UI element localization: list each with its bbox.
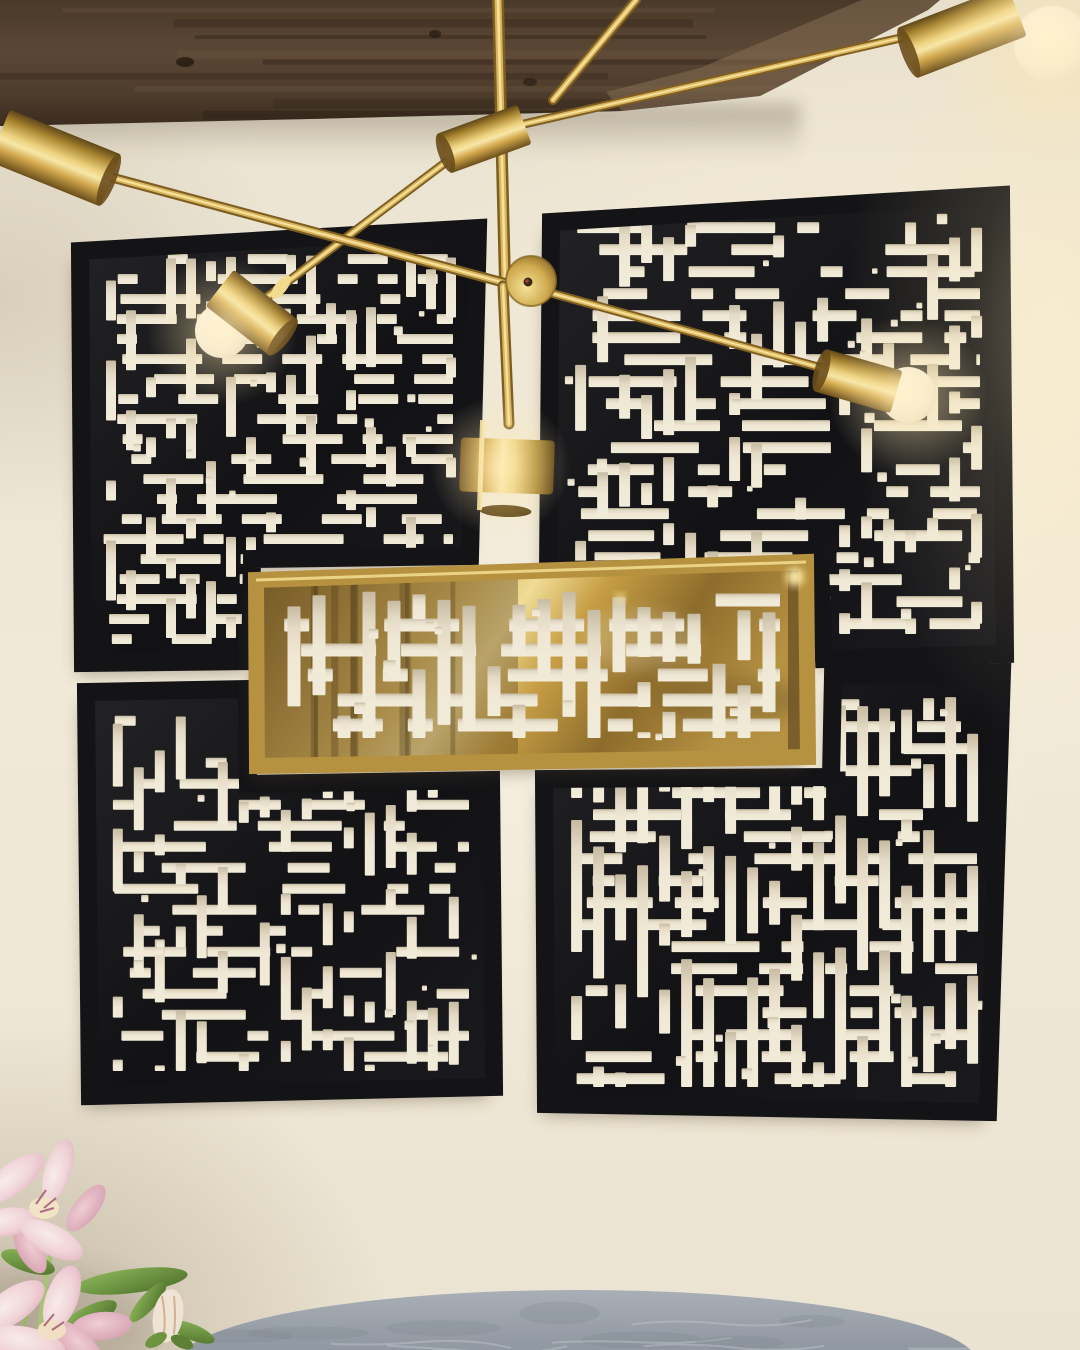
kufic-cutout: [458, 842, 469, 852]
kufic-cutout: [354, 703, 366, 715]
beam-grain-streak: [0, 73, 608, 80]
kufic-cutout: [716, 594, 780, 607]
kufic-cutout: [689, 266, 755, 277]
flower-petal: [59, 1179, 112, 1238]
kufic-cutout: [134, 960, 143, 969]
kufic-cutout: [428, 1008, 438, 1071]
kufic-cutout: [396, 947, 459, 957]
kufic-cutout: [155, 750, 165, 792]
kufic-cutout: [744, 831, 832, 842]
kufic-cutout: [581, 508, 669, 519]
kufic-cutout: [162, 863, 246, 873]
kufic-cutout: [731, 244, 775, 255]
kufic-cutout: [197, 1021, 207, 1063]
kufic-cutout: [681, 871, 692, 937]
kufic-cutout: [229, 491, 235, 497]
kufic-cutout: [891, 994, 901, 1004]
kufic-cutout: [306, 336, 316, 396]
kufic-cutout: [593, 809, 681, 820]
kufic-cutout: [659, 990, 670, 1034]
kufic-cutout: [369, 629, 379, 639]
kufic-cutout: [638, 682, 651, 707]
kufic-cutout: [187, 450, 193, 456]
kufic-cutout: [691, 288, 713, 299]
kufic-cutout: [879, 840, 890, 928]
kufic-cutout: [685, 357, 696, 423]
kufic-cutout: [109, 614, 149, 624]
kufic-cutout: [383, 660, 396, 673]
kufic-cutout: [218, 867, 228, 909]
kufic-cutout: [405, 1021, 414, 1030]
marble-mottle: [519, 1301, 599, 1324]
kufic-cutout: [437, 989, 469, 999]
kufic-cutout: [794, 919, 860, 930]
kufic-cutout: [857, 838, 868, 970]
marble-mottle: [580, 1331, 702, 1348]
kufic-cutout: [923, 698, 934, 720]
kufic-cutout: [935, 963, 977, 974]
kufic-cutout: [839, 525, 850, 547]
kufic-cutout: [146, 437, 156, 457]
kufic-cutout: [597, 459, 607, 469]
kufic-cutout: [721, 376, 809, 387]
kufic-cutout: [226, 617, 236, 638]
beam-knot: [429, 30, 441, 38]
kufic-cutout: [407, 917, 417, 959]
kufic-cutout: [923, 830, 934, 962]
kufic-cutout: [204, 534, 224, 544]
kufic-cutout: [725, 856, 736, 944]
kufic-cutout: [681, 959, 692, 1087]
beam-knot: [176, 57, 194, 67]
kufic-cutout: [773, 235, 784, 257]
kufic-cutout: [619, 221, 630, 287]
kufic-cutout: [426, 426, 432, 432]
kufic-cutout: [449, 1002, 459, 1065]
kufic-cutout: [763, 260, 769, 266]
kufic-cutout: [683, 719, 780, 732]
kufic-cutout: [438, 600, 451, 725]
kufic-cutout: [672, 941, 760, 952]
kufic-cutout: [406, 437, 416, 457]
kufic-cutout: [113, 997, 123, 1018]
kufic-cutout: [206, 477, 213, 484]
kufic-cutout: [113, 829, 123, 892]
kufic-cutout: [615, 786, 626, 852]
kufic-cutout: [413, 669, 426, 738]
kufic-cutout: [366, 427, 376, 467]
kufic-cutout: [663, 457, 674, 501]
kufic-cutout: [282, 884, 345, 894]
kufic-cutout: [166, 418, 176, 438]
kufic-cutout: [344, 1037, 354, 1071]
kufic-cutout: [901, 820, 912, 842]
kufic-cutout: [346, 803, 355, 812]
kufic-cutout: [346, 390, 356, 410]
kufic-cutout: [513, 705, 526, 738]
kufic-cutout: [426, 269, 436, 309]
kufic-cutout: [386, 805, 396, 868]
kufic-cutout: [146, 517, 156, 557]
kufic-cutout: [288, 606, 301, 706]
kufic-cutout: [764, 464, 786, 475]
kufic-cutout: [735, 288, 779, 299]
kufic-cutout: [288, 863, 330, 873]
kufic-cutout: [769, 969, 780, 1057]
kufic-cutout: [846, 765, 912, 776]
kufic-cutout: [967, 976, 978, 1064]
kufic-cutout: [337, 414, 357, 424]
kufic-cutout: [344, 827, 354, 848]
kufic-cutout: [365, 1065, 375, 1071]
kufic-cutout: [640, 919, 706, 930]
kufic-cutout: [260, 797, 270, 818]
kufic-cutout: [931, 1034, 941, 1044]
kufic-cutout: [407, 833, 417, 875]
kufic-cutout: [248, 254, 288, 264]
kufic-cutout: [186, 519, 196, 539]
gold-wood-streak: [450, 565, 455, 770]
kufic-cutout: [264, 534, 344, 544]
beam-knot: [523, 78, 537, 86]
kufic-cutout: [611, 442, 699, 453]
kufic-cutout: [707, 485, 718, 507]
kufic-cutout: [742, 1068, 753, 1079]
kufic-cutout: [344, 995, 354, 1016]
kufic-cutout: [331, 454, 391, 464]
kufic-cutout: [365, 813, 375, 876]
kufic-cutout: [967, 866, 978, 932]
kufic-cutout: [593, 1067, 604, 1088]
kufic-cutout: [385, 1009, 393, 1017]
kufic-cutout: [908, 853, 977, 864]
kufic-cutout: [226, 537, 236, 577]
kufic-cutout: [945, 873, 956, 961]
kufic-cutout: [176, 1011, 186, 1072]
kufic-cutout: [597, 472, 608, 516]
kufic-cutout: [563, 592, 576, 717]
kufic-cutout: [386, 952, 396, 1015]
kufic-cutout: [532, 608, 540, 616]
kufic-cutout: [123, 947, 186, 957]
kufic-cutout: [300, 458, 309, 467]
kufic-cutout: [593, 847, 604, 979]
kufic-cutout: [563, 700, 573, 710]
kufic-cutout: [839, 613, 850, 634]
kufic-cutout: [463, 606, 476, 731]
chandelier-hub-glint: [525, 279, 529, 283]
kufic-cutout: [703, 846, 714, 912]
kufic-cutout: [586, 985, 608, 996]
kufic-cutout: [146, 377, 156, 397]
kufic-cutout: [358, 394, 398, 404]
kufic-cutout: [588, 610, 601, 738]
kufic-cutout: [742, 420, 830, 431]
kufic-cutout: [426, 622, 435, 631]
kufic-cutout: [703, 978, 714, 1087]
kufic-cutout: [407, 394, 415, 402]
kufic-cutout: [134, 851, 144, 872]
kufic-cutout: [186, 579, 196, 619]
kufic-cutout: [281, 810, 291, 852]
kufic-cutout: [940, 709, 948, 717]
kufic-cutout: [603, 288, 647, 299]
gold-bulb-reflection: [615, 593, 625, 603]
kufic-cutout: [879, 809, 923, 820]
kufic-cutout: [769, 842, 776, 849]
kufic-cutout: [638, 732, 651, 738]
kufic-cutout: [864, 557, 874, 567]
kufic-cutout: [513, 605, 526, 655]
bulb-glow: [147, 256, 297, 406]
kufic-cutout: [429, 884, 450, 894]
kufic-cutout: [363, 592, 376, 738]
kufic-cutout: [118, 394, 138, 404]
kufic-cutout: [775, 1073, 841, 1084]
kufic-cutout: [218, 951, 228, 993]
kufic-cutout: [118, 274, 138, 284]
kufic-cutout: [377, 314, 397, 324]
kufic-cutout: [206, 461, 216, 521]
kufic-cutout: [157, 940, 165, 948]
kufic-cutout: [141, 895, 148, 902]
kufic-cutout: [172, 634, 212, 644]
kufic-cutout: [120, 574, 160, 584]
kufic-cutout: [365, 1002, 375, 1023]
kufic-cutout: [281, 894, 291, 915]
kufic-cutout: [197, 895, 207, 958]
kufic-cutout: [659, 836, 670, 902]
kufic-cutout: [945, 1071, 956, 1087]
marble-vein: [907, 1301, 1080, 1306]
gold-bulb-reflection: [786, 568, 804, 586]
kufic-cutout: [113, 724, 123, 787]
kufic-cutout: [747, 486, 753, 492]
kufic-cutout: [166, 598, 176, 638]
kufic-cutout: [365, 418, 374, 427]
kufic-cutout: [354, 374, 394, 384]
kufic-cutout: [588, 530, 654, 541]
kufic-cutout: [907, 1073, 951, 1084]
kufic-cutout: [217, 594, 237, 604]
kufic-cutout: [435, 863, 456, 873]
beam-grain-streak: [195, 35, 707, 39]
kufic-cutout: [763, 612, 776, 712]
kufic-cutout: [713, 664, 726, 738]
kufic-cutout: [166, 478, 176, 518]
kufic-cutout: [346, 310, 356, 370]
kufic-cutout: [945, 983, 956, 1049]
kufic-cutout: [176, 717, 186, 780]
kufic-cutout: [837, 552, 859, 563]
kufic-cutout: [688, 614, 701, 664]
kufic-cutout: [172, 905, 256, 915]
kufic-cutout: [472, 954, 477, 959]
kufic-cutout: [821, 266, 843, 277]
gold-wood-streak: [331, 565, 338, 770]
kufic-cutout: [176, 864, 186, 885]
kufic-cutout: [663, 523, 674, 545]
kufic-cutout: [619, 375, 630, 419]
kufic-cutout: [419, 311, 425, 317]
kufic-cutout: [313, 595, 326, 695]
kufic-cutout: [126, 570, 136, 610]
kufic-cutout: [571, 820, 582, 952]
kufic-cutout: [113, 1060, 123, 1071]
kufic-cutout: [751, 444, 762, 488]
kufic-cutout: [769, 881, 780, 925]
kufic-cutout: [586, 1051, 652, 1062]
kufic-cutout: [114, 884, 198, 894]
kufic-cutout: [106, 281, 116, 321]
kufic-cutout: [121, 1031, 163, 1041]
kufic-cutout: [641, 483, 652, 505]
kufic-cutout: [326, 303, 336, 343]
kufic-cutout: [835, 948, 846, 1080]
kufic-cutout: [106, 481, 116, 501]
kufic-cutout: [338, 274, 358, 284]
kufic-cutout: [857, 1036, 868, 1087]
kufic-cutout: [302, 988, 312, 1051]
marble-mottle: [780, 1315, 844, 1328]
kufic-cutout: [239, 802, 249, 823]
kufic-cutout: [248, 460, 255, 467]
kufic-cutout: [180, 779, 243, 789]
kufic-cutout: [615, 1072, 626, 1087]
kufic-cutout: [716, 1035, 723, 1042]
kufic-cutout: [380, 294, 400, 304]
kufic-cutout: [444, 534, 453, 544]
kufic-cutout: [813, 952, 824, 1018]
kufic-cutout: [286, 375, 296, 435]
kufic-cutout: [575, 365, 586, 431]
kufic-cutout: [608, 719, 633, 732]
marble-mottle: [384, 1320, 501, 1336]
kufic-cutout: [663, 369, 674, 435]
kufic-cutout: [346, 490, 356, 510]
kufic-cutout: [851, 1007, 873, 1018]
kufic-cutout: [162, 1010, 246, 1020]
kufic-cutout: [624, 354, 712, 365]
kufic-cutout: [291, 947, 312, 957]
kufic-cutout: [901, 886, 912, 974]
kufic-cutout: [685, 225, 696, 247]
kufic-cutout: [813, 1062, 824, 1087]
kufic-cutout: [687, 222, 775, 233]
kufic-cutout: [768, 1017, 779, 1028]
kufic-cutout: [896, 839, 903, 846]
kufic-cutout: [791, 1025, 802, 1087]
kufic-cutout: [166, 558, 176, 578]
kufic-cutout: [281, 1041, 291, 1062]
bismillah-gold-panel: [251, 560, 810, 777]
kufic-cutout: [676, 1056, 686, 1066]
kufic-cutout: [133, 444, 141, 452]
kufic-cutout: [729, 437, 740, 481]
kufic-cutout: [106, 361, 116, 421]
kufic-cutout: [323, 1029, 333, 1050]
kufic-cutout: [638, 607, 651, 657]
kufic-cutout: [155, 834, 165, 855]
kufic-cutout: [725, 1032, 736, 1087]
kufic-cutout: [344, 911, 354, 932]
bulb-glow: [430, 396, 570, 536]
kufic-cutout: [323, 966, 333, 1008]
kufic-cutout: [911, 759, 921, 769]
kufic-cutout: [923, 764, 934, 808]
kufic-cutout: [578, 486, 600, 497]
kufic-cutout: [378, 274, 398, 284]
beam-grain-streak: [263, 60, 990, 65]
kufic-cutout: [323, 903, 333, 945]
gold-wood-streak: [351, 565, 358, 770]
kufic-cutout: [239, 1054, 249, 1071]
kufic-cutout: [908, 1057, 918, 1067]
kufic-cutout: [418, 394, 453, 404]
kufic-cutout: [384, 534, 424, 544]
kufic-cutout: [813, 842, 824, 930]
kufic-cutout: [797, 222, 819, 233]
kufic-cutout: [738, 398, 826, 409]
kufic-cutout: [106, 541, 116, 601]
kufic-cutout: [435, 627, 442, 634]
kufic-cutout: [298, 905, 319, 915]
kufic-cutout: [615, 874, 626, 940]
kufic-cutout: [258, 821, 342, 831]
kufic-cutout: [879, 950, 890, 1060]
kufic-cutout: [246, 437, 256, 477]
kufic-cutout: [247, 1031, 268, 1041]
kufic-cutout: [488, 666, 501, 716]
kufic-cutout: [699, 869, 706, 876]
kufic-cutout: [857, 706, 868, 816]
kufic-cutout: [122, 514, 142, 524]
kufic-cutout: [413, 594, 426, 619]
kufic-cutout: [795, 498, 806, 520]
kufic-cutout: [663, 237, 674, 281]
kufic-cutout: [879, 708, 890, 796]
kufic-cutout: [658, 669, 708, 682]
kufic-cutout: [901, 710, 912, 754]
kufic-cutout: [571, 996, 582, 1040]
gold-wood-streak: [405, 565, 411, 770]
kufic-cutout: [824, 831, 833, 840]
kufic-cutout: [407, 1001, 417, 1064]
kufic-cutout: [732, 399, 742, 409]
scene-illustration: [0, 0, 1080, 1350]
kufic-cutout: [397, 334, 453, 344]
kufic-cutout: [817, 298, 828, 342]
kufic-cutout: [613, 597, 626, 672]
kufic-cutout: [218, 762, 228, 825]
kufic-cutout: [266, 512, 276, 532]
kufic-cutout: [738, 610, 751, 660]
kufic-cutout: [641, 395, 652, 439]
kufic-cutout: [565, 376, 573, 384]
kufic-cutout: [694, 398, 716, 409]
kufic-cutout: [176, 927, 186, 948]
kufic-cutout: [206, 581, 216, 638]
kufic-cutout: [901, 996, 912, 1087]
kufic-cutout: [791, 827, 802, 871]
kufic-cutout: [155, 947, 163, 955]
kufic-cutout: [276, 944, 285, 953]
kufic-cutout: [861, 582, 872, 626]
kufic-cutout: [449, 897, 459, 939]
kufic-cutout: [348, 254, 388, 264]
kufic-cutout: [422, 986, 427, 991]
kufic-cutout: [394, 326, 403, 335]
